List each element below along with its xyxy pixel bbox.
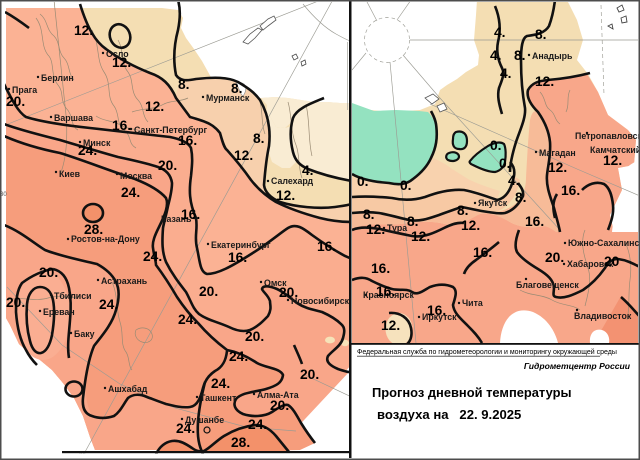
svg-text:12.: 12. <box>461 218 480 233</box>
svg-text:12.: 12. <box>276 188 295 203</box>
svg-text:12.: 12. <box>74 23 93 38</box>
svg-text:16.: 16. <box>178 133 197 148</box>
svg-text:0.: 0. <box>490 138 502 153</box>
svg-text:8.: 8. <box>363 207 375 222</box>
svg-text:20.: 20. <box>279 285 298 300</box>
svg-text:20.: 20. <box>199 284 218 299</box>
svg-text:12.: 12. <box>381 318 400 333</box>
svg-text:16.: 16. <box>473 245 492 260</box>
svg-text:28.: 28. <box>231 435 250 450</box>
svg-text:16.: 16. <box>112 118 131 133</box>
svg-text:12.: 12. <box>112 55 131 70</box>
svg-text:Владивосток: Владивосток <box>574 311 632 321</box>
svg-text:20.: 20. <box>245 329 264 344</box>
svg-text:Варшава: Варшава <box>54 113 93 123</box>
svg-text:12.: 12. <box>234 148 253 163</box>
svg-text:0.: 0. <box>400 178 412 193</box>
svg-text:Тбилиси: Тбилиси <box>54 291 92 301</box>
svg-text:12.: 12. <box>145 99 164 114</box>
svg-text:8.: 8. <box>231 81 243 96</box>
svg-text:8.: 8. <box>457 203 469 218</box>
svg-text:Ростов-на-Дону: Ростов-на-Дону <box>71 234 140 244</box>
svg-text:24.: 24. <box>143 249 162 264</box>
svg-text:20.: 20. <box>270 398 289 413</box>
svg-text:16.: 16. <box>317 239 336 254</box>
svg-text:Новосибирск: Новосибирск <box>291 296 350 306</box>
svg-text:12.: 12. <box>535 74 554 89</box>
svg-text:8.: 8. <box>253 131 265 146</box>
svg-text:Астрахань: Астрахань <box>101 276 148 286</box>
svg-text:8.: 8. <box>514 48 526 63</box>
svg-text:Мурманск: Мурманск <box>206 93 250 103</box>
svg-text:16.: 16. <box>427 303 446 318</box>
svg-text:24.: 24. <box>178 312 197 327</box>
svg-text:Прогноз дневной температуры: Прогноз дневной температуры <box>372 385 571 400</box>
svg-text:4.: 4. <box>500 66 512 81</box>
svg-text:20: 20 <box>604 254 620 269</box>
svg-text:Анадырь: Анадырь <box>532 51 573 61</box>
svg-text:Ашхабад: Ашхабад <box>108 384 148 394</box>
svg-text:20.: 20. <box>6 94 25 109</box>
svg-text:24.: 24. <box>211 376 230 391</box>
svg-text:12.: 12. <box>603 153 622 168</box>
svg-text:4.: 4. <box>302 163 314 178</box>
svg-text:16.: 16. <box>376 284 395 299</box>
svg-text:Киев: Киев <box>59 169 81 179</box>
svg-text:24.: 24. <box>78 143 97 158</box>
svg-text:16.: 16. <box>228 250 247 265</box>
svg-text:Тура: Тура <box>387 223 407 233</box>
svg-text:Ереван: Ереван <box>43 307 75 317</box>
svg-text:16.: 16. <box>371 261 390 276</box>
svg-text:Петропавловск: Петропавловск <box>575 131 640 141</box>
svg-text:16.: 16. <box>181 207 200 222</box>
svg-text:8.: 8. <box>535 27 547 42</box>
svg-text:20.: 20. <box>6 295 25 310</box>
svg-text:Чита: Чита <box>462 298 483 308</box>
svg-text:24.: 24. <box>229 349 248 364</box>
svg-text:Екатеринбург: Екатеринбург <box>211 240 271 250</box>
svg-text:28.: 28. <box>84 222 103 237</box>
svg-text:4.: 4. <box>508 173 520 188</box>
svg-text:8.: 8. <box>515 190 527 205</box>
svg-text:Гидрометцентр России: Гидрометцентр России <box>524 361 631 371</box>
svg-text:Ташкент: Ташкент <box>200 393 237 403</box>
svg-text:0.: 0. <box>357 174 369 189</box>
svg-text:20.: 20. <box>545 250 564 265</box>
svg-text:16.: 16. <box>525 214 544 229</box>
svg-text:4.: 4. <box>494 25 506 40</box>
svg-text:Баку: Баку <box>74 329 95 339</box>
svg-text:24.: 24. <box>99 297 118 312</box>
svg-text:Берлин: Берлин <box>41 73 74 83</box>
svg-text:8.: 8. <box>407 214 419 229</box>
svg-text:20.: 20. <box>39 265 58 280</box>
svg-text:Якутск: Якутск <box>478 198 508 208</box>
svg-text:16.: 16. <box>561 183 580 198</box>
svg-text:Федеральная служба по гидромет: Федеральная служба по гидрометеорологии … <box>357 348 617 356</box>
svg-text:Благовещенск: Благовещенск <box>516 280 579 290</box>
svg-text:20.: 20. <box>300 367 319 382</box>
svg-text:20.: 20. <box>158 158 177 173</box>
svg-text:0.: 0. <box>499 156 511 171</box>
svg-text:12.: 12. <box>548 160 567 175</box>
svg-text:24.: 24. <box>176 421 195 436</box>
svg-text:12.: 12. <box>411 229 430 244</box>
svg-text:12.: 12. <box>366 222 385 237</box>
svg-text:Москва: Москва <box>120 171 152 181</box>
svg-text:24.: 24. <box>121 185 140 200</box>
svg-text:Магадан: Магадан <box>539 148 576 158</box>
svg-text:24.: 24. <box>248 417 267 432</box>
svg-text:воздуха на 22. 9.2025: воздуха на 22. 9.2025 <box>377 407 521 422</box>
svg-text:4.: 4. <box>490 48 502 63</box>
svg-text:Южно-Сахалинск: Южно-Сахалинск <box>568 238 640 248</box>
svg-text:8.: 8. <box>178 77 190 92</box>
